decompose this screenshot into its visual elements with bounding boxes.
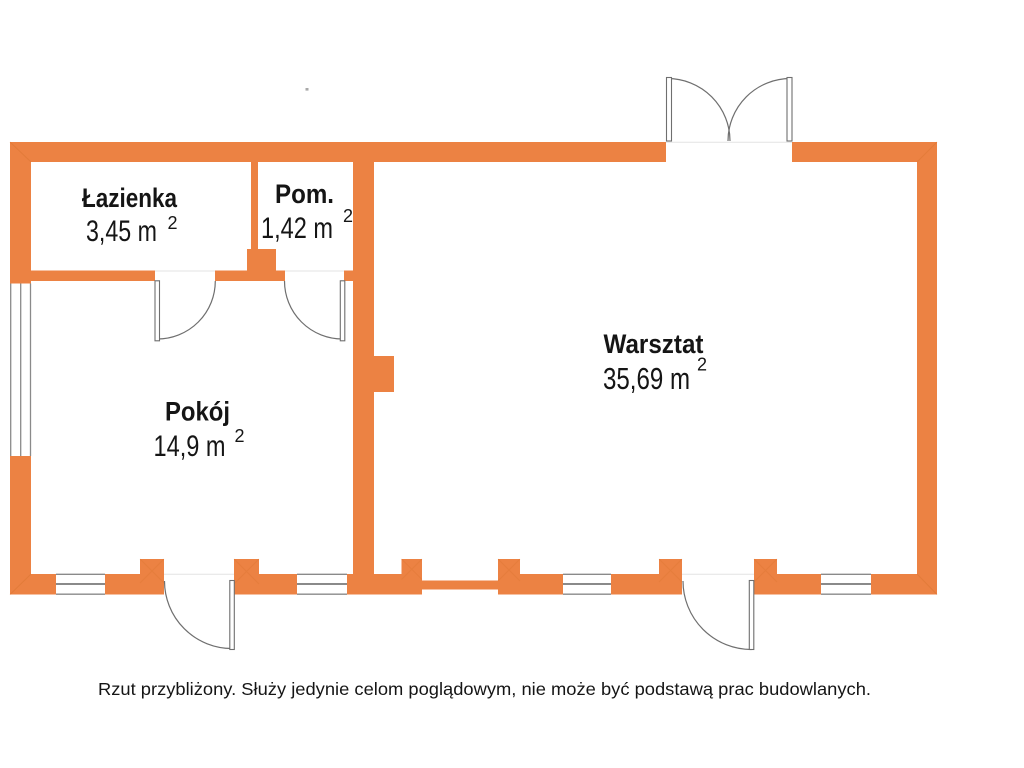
svg-text:2: 2 bbox=[697, 355, 707, 375]
svg-text:1,42 m: 1,42 m bbox=[261, 212, 333, 245]
svg-text:Pokój: Pokój bbox=[165, 397, 230, 427]
svg-text:Pom.: Pom. bbox=[275, 179, 334, 209]
svg-text:Warsztat: Warsztat bbox=[604, 329, 704, 359]
svg-text:3,45 m: 3,45 m bbox=[86, 215, 157, 248]
svg-text:2: 2 bbox=[343, 206, 353, 226]
svg-text:14,9 m: 14,9 m bbox=[154, 430, 226, 463]
svg-text:Rzut przybliżony. Służy jedyni: Rzut przybliżony. Służy jedynie celom po… bbox=[98, 679, 871, 699]
svg-text:35,69 m: 35,69 m bbox=[603, 361, 690, 396]
svg-text:2: 2 bbox=[168, 213, 178, 233]
svg-text:2: 2 bbox=[235, 426, 245, 446]
svg-text:Łazienka: Łazienka bbox=[82, 183, 178, 213]
